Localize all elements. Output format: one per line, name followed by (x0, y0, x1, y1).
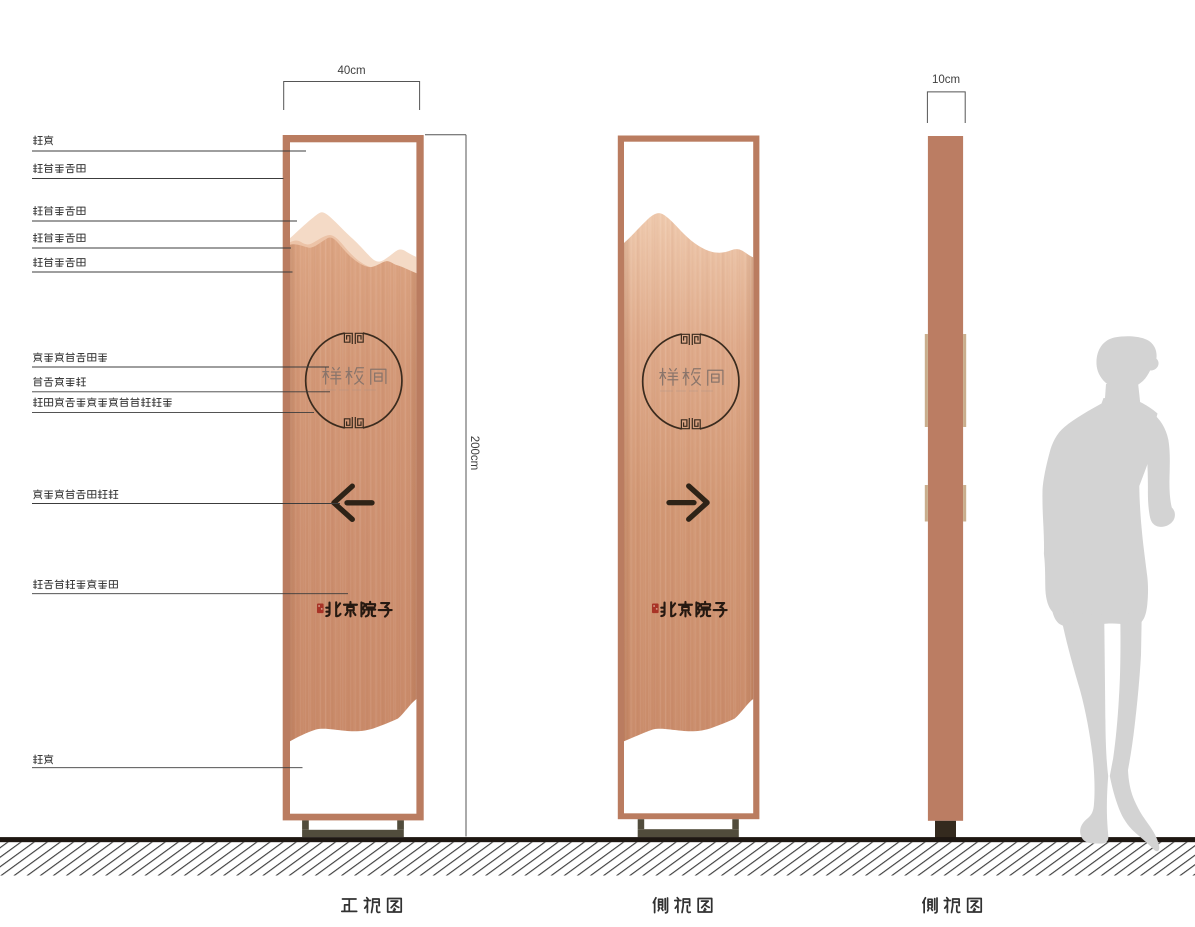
svg-text:10cm: 10cm (932, 74, 960, 86)
svg-text:40cm: 40cm (337, 65, 365, 77)
svg-text:200cm: 200cm (468, 436, 480, 471)
